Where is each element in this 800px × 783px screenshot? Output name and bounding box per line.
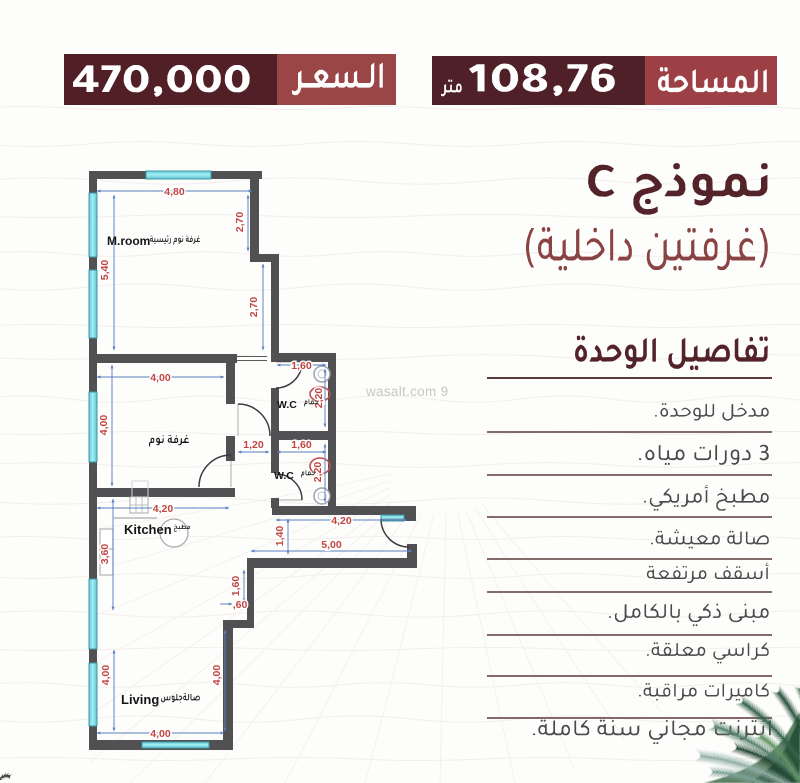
svg-text:4,20: 4,20 [331, 515, 352, 527]
svg-text:5,00: 5,00 [321, 539, 342, 551]
svg-text:4,00: 4,00 [150, 728, 171, 740]
svg-text:1,40: 1,40 [274, 526, 286, 547]
svg-text:1,20: 1,20 [243, 439, 264, 451]
svg-text:4,20: 4,20 [153, 503, 174, 515]
svg-text:1,60: 1,60 [291, 360, 312, 372]
svg-text:3,60: 3,60 [99, 544, 111, 565]
svg-text:4,00: 4,00 [150, 372, 171, 384]
svg-text:W.C: W.C [277, 399, 297, 411]
svg-text:1,60: 1,60 [291, 439, 312, 451]
svg-text:2,20: 2,20 [313, 388, 325, 409]
svg-text:,60: ,60 [233, 599, 248, 611]
svg-text:4,80: 4,80 [164, 186, 185, 198]
svg-text:1,60: 1,60 [230, 576, 242, 597]
svg-text:4,00: 4,00 [211, 665, 223, 686]
svg-text:Living: Living [121, 692, 159, 707]
svg-text:4,00: 4,00 [98, 415, 110, 436]
svg-text:2,70: 2,70 [234, 212, 246, 233]
svg-text:4,00: 4,00 [100, 665, 112, 686]
svg-text:wasalt.com 9: wasalt.com 9 [365, 384, 448, 399]
svg-text:2,70: 2,70 [248, 297, 260, 318]
svg-text:W.C: W.C [274, 470, 294, 482]
svg-text:M.room: M.room [107, 234, 150, 248]
svg-text:5,40: 5,40 [99, 260, 111, 281]
svg-text:Kitchen: Kitchen [124, 522, 172, 537]
